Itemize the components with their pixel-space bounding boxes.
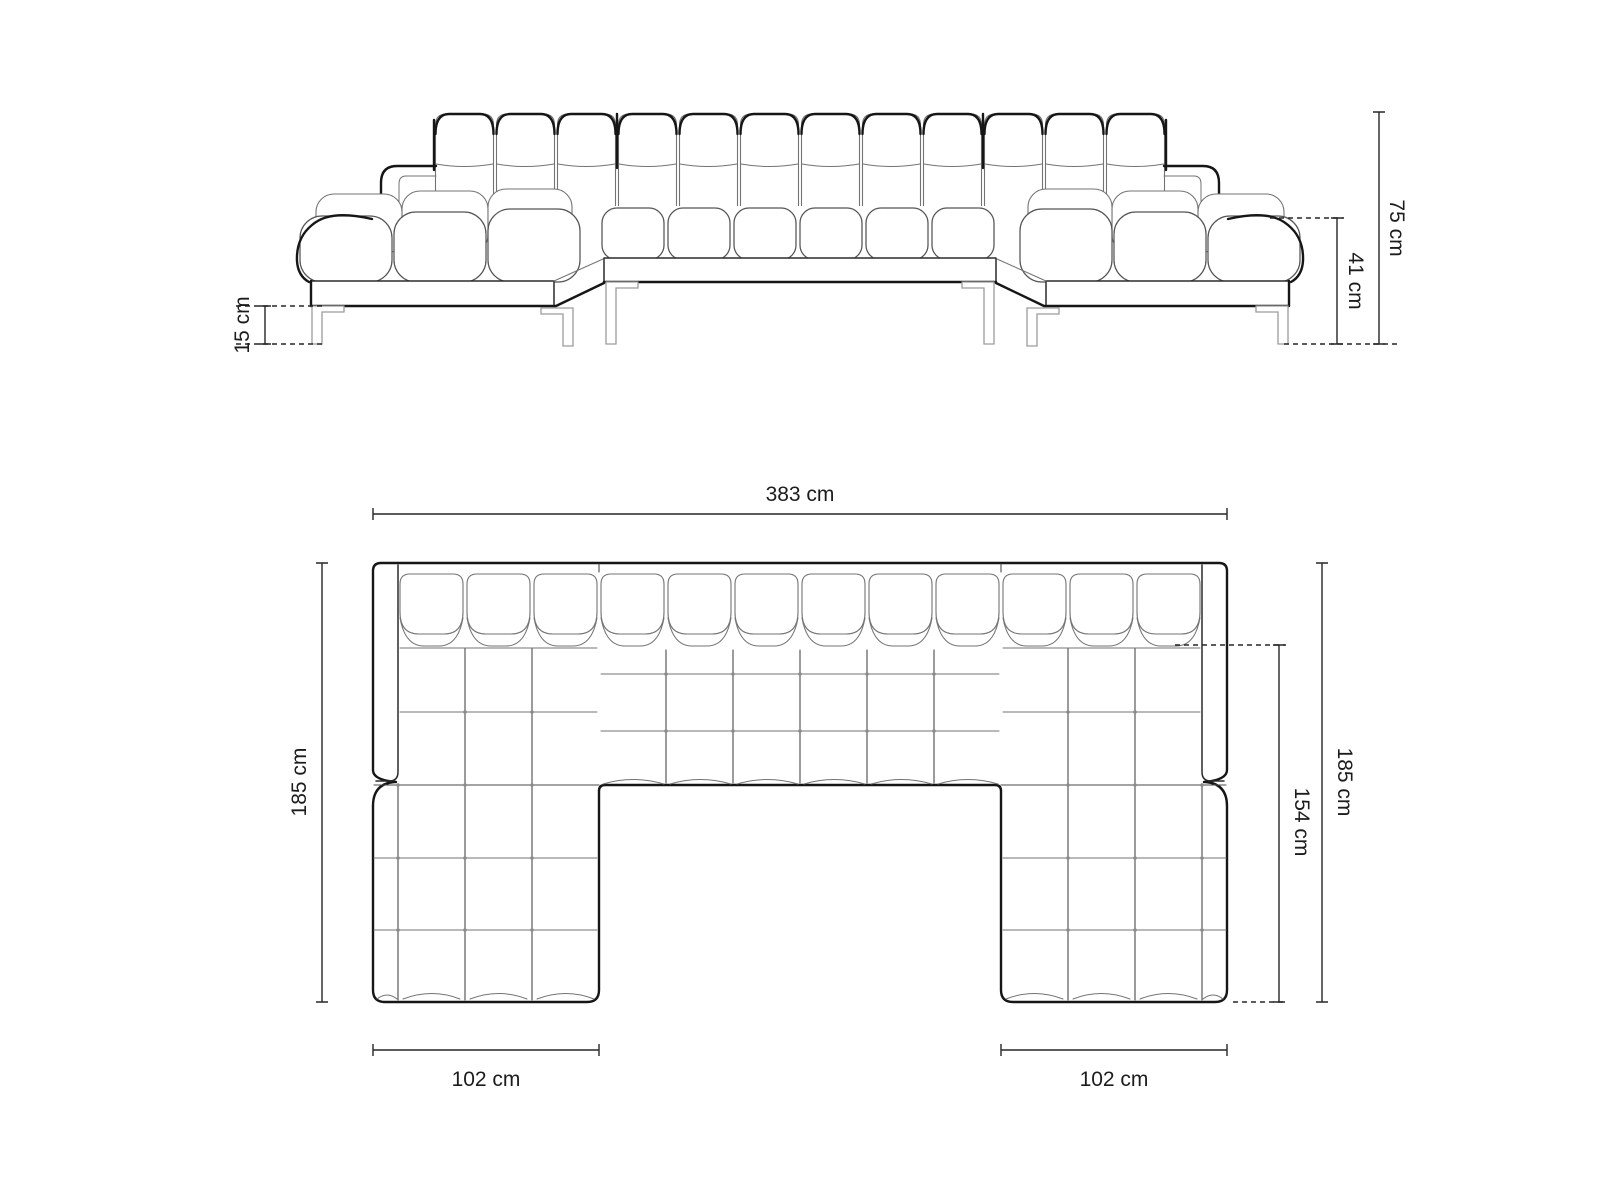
dimension-depth-left: 185 cm [288,563,328,1002]
sofa-dimension-diagram: 15 cm 41 cm 75 cm [0,0,1600,1200]
arm-height-label: 41 cm [1344,252,1367,309]
dimension-chaise-width-right: 102 cm [1001,1044,1227,1091]
total-height-label: 75 cm [1385,199,1408,256]
depth-right-label: 185 cm [1333,748,1356,817]
sofa-center-section [602,208,996,344]
depth-left-label: 185 cm [288,748,311,817]
dimension-total-height: 75 cm [1373,112,1408,344]
chaise-width-left-label: 102 cm [452,1068,521,1091]
leg-height-label: 15 cm [231,296,254,353]
top-plan-view: 383 cm 185 cm 185 cm 154 cm 102 cm 102 c… [288,483,1356,1091]
dimension-depth-right: 185 cm [1316,563,1356,1002]
dimension-leg-height: 15 cm [231,296,322,353]
dimension-total-width: 383 cm [373,483,1227,520]
total-width-label: 383 cm [766,483,835,506]
sofa-left-chaise [297,166,604,346]
front-elevation-view: 15 cm 41 cm 75 cm [231,112,1408,354]
dimension-chaise-width-left: 102 cm [373,1044,599,1091]
chaise-width-right-label: 102 cm [1080,1068,1149,1091]
sofa-right-chaise [996,166,1303,346]
chaise-inner-depth-label: 154 cm [1290,788,1313,857]
